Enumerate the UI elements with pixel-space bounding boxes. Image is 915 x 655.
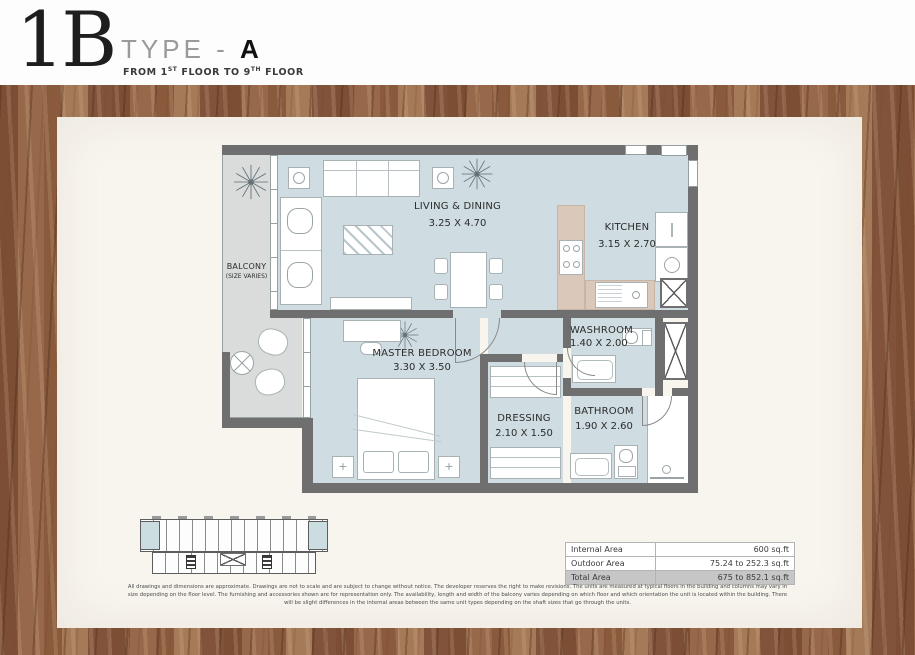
plant-icon — [232, 163, 270, 201]
balcony-sliding-window — [270, 155, 278, 310]
room-name: WASHROOM — [570, 325, 650, 336]
wall-washroom-bathroom — [563, 388, 642, 396]
table-row: Internal Area 600 sq.ft — [566, 543, 794, 557]
window-right — [688, 160, 698, 187]
disclaimer-text: All drawings and dimensions are approxim… — [125, 584, 790, 608]
room-name: BALCONY — [222, 263, 271, 272]
room-label-master: MASTER BEDROOM 3.30 X 3.50 — [332, 348, 512, 373]
key-plan — [138, 514, 330, 578]
shower-drain — [662, 465, 671, 474]
balcony-table — [230, 351, 254, 375]
wall-kitchen-washroom — [501, 310, 688, 318]
table-row: Total Area 675 to 852.1 sq.ft — [566, 571, 794, 584]
service-shaft — [660, 278, 688, 308]
wall-step — [302, 418, 313, 493]
room-label-balcony: BALCONY (SIZE VARIES) — [222, 263, 271, 280]
floor-range-part: FROM 1 — [123, 67, 168, 78]
room-dims: 2.10 X 1.50 — [484, 428, 564, 439]
key-plan-upper-row — [140, 519, 328, 552]
bathroom-sink — [570, 453, 612, 479]
wall-balcony-left — [222, 352, 230, 428]
tv-unit — [330, 297, 412, 310]
wall-living-bedroom — [270, 310, 453, 318]
area-value: 75.24 to 252.3 sq.ft — [656, 557, 794, 570]
table-row: Outdoor Area 75.24 to 252.3 sq.ft — [566, 557, 794, 571]
area-table: Internal Area 600 sq.ft Outdoor Area 75.… — [565, 542, 795, 585]
highlighted-unit-left — [140, 521, 160, 550]
window-top — [661, 145, 687, 156]
type-prefix: TYPE - — [121, 34, 240, 64]
room-label-washroom: WASHROOM 1.40 X 2.00 — [570, 325, 650, 349]
type-letter: A — [240, 34, 259, 64]
room-label-kitchen: KITCHEN 3.15 X 2.70 — [584, 222, 670, 250]
desk — [343, 320, 401, 342]
closet-bottom — [490, 447, 561, 479]
room-dims: 3.30 X 3.50 — [332, 362, 512, 373]
wall-washroom-bathroom — [672, 388, 688, 396]
wall-bottom — [313, 483, 698, 493]
floor-range-part: FLOOR — [261, 67, 304, 78]
room-name: BATHROOM — [561, 406, 647, 417]
wall-balcony-bottom — [222, 418, 313, 428]
sofa-side — [280, 197, 322, 305]
room-name: MASTER BEDROOM — [332, 348, 512, 359]
dining-chair — [489, 284, 503, 300]
unit-type-line: TYPE - A — [121, 34, 259, 65]
pillow — [363, 451, 394, 473]
key-plan-stair-core — [186, 555, 196, 569]
area-label: Internal Area — [566, 543, 656, 556]
side-table-left — [288, 167, 310, 189]
brochure-page: 1B TYPE - A FROM 1ST FLOOR TO 9TH FLOOR — [0, 0, 915, 655]
nightstand-right: + — [438, 456, 460, 478]
bed — [357, 378, 435, 480]
service-shaft — [663, 322, 688, 380]
room-name: LIVING & DINING — [375, 201, 540, 212]
room-note: (SIZE VARIES) — [222, 274, 271, 281]
area-label: Total Area — [566, 571, 656, 584]
room-name: KITCHEN — [584, 222, 670, 233]
floor-range: FROM 1ST FLOOR TO 9TH FLOOR — [123, 66, 304, 78]
room-label-dressing: DRESSING 2.10 X 1.50 — [484, 413, 564, 439]
key-plan-lift-core — [220, 553, 246, 566]
area-label: Outdoor Area — [566, 557, 656, 570]
wall-dressing-top — [557, 354, 563, 362]
floor-range-sup: TH — [251, 66, 261, 73]
dining-chair — [434, 258, 448, 274]
dining-chair — [489, 258, 503, 274]
room-label-bathroom: BATHROOM 1.90 X 2.60 — [561, 406, 647, 432]
area-value: 600 sq.ft — [656, 543, 794, 556]
wall-washroom-shaft — [655, 318, 663, 396]
area-value: 675 to 852.1 sq.ft — [656, 571, 794, 584]
shower-bar — [650, 477, 684, 479]
pillow — [398, 451, 429, 473]
plant-icon — [460, 157, 494, 191]
washing-machine — [655, 247, 688, 282]
room-dims: 3.15 X 2.70 — [584, 239, 670, 250]
wall-right — [688, 145, 698, 493]
door-leaf — [556, 362, 557, 395]
room-dims: 1.40 X 2.00 — [570, 338, 650, 349]
room-dims: 3.25 X 4.70 — [375, 218, 540, 229]
sofa-main — [323, 160, 420, 197]
bathroom-toilet — [614, 445, 638, 479]
floor-range-part: FLOOR TO 9 — [177, 67, 250, 78]
room-dims: 1.90 X 2.60 — [561, 421, 647, 432]
window-top — [625, 145, 647, 155]
key-plan-stair-core — [262, 555, 272, 569]
nightstand-left: + — [332, 456, 354, 478]
room-name: DRESSING — [484, 413, 564, 424]
dining-chair — [434, 284, 448, 300]
kitchen-sink — [595, 282, 648, 308]
highlighted-unit-right — [308, 521, 328, 550]
stove — [559, 240, 583, 275]
dining-table — [450, 252, 487, 308]
room-label-living: LIVING & DINING 3.25 X 4.70 — [375, 201, 540, 229]
floor-plan: + + — [222, 145, 698, 493]
balcony-railing — [222, 155, 223, 352]
rug — [343, 225, 393, 255]
bedroom-window — [303, 318, 311, 418]
side-table-right — [432, 167, 454, 189]
door-gap-floor — [453, 310, 501, 318]
unit-type-code: 1B — [16, 2, 114, 78]
